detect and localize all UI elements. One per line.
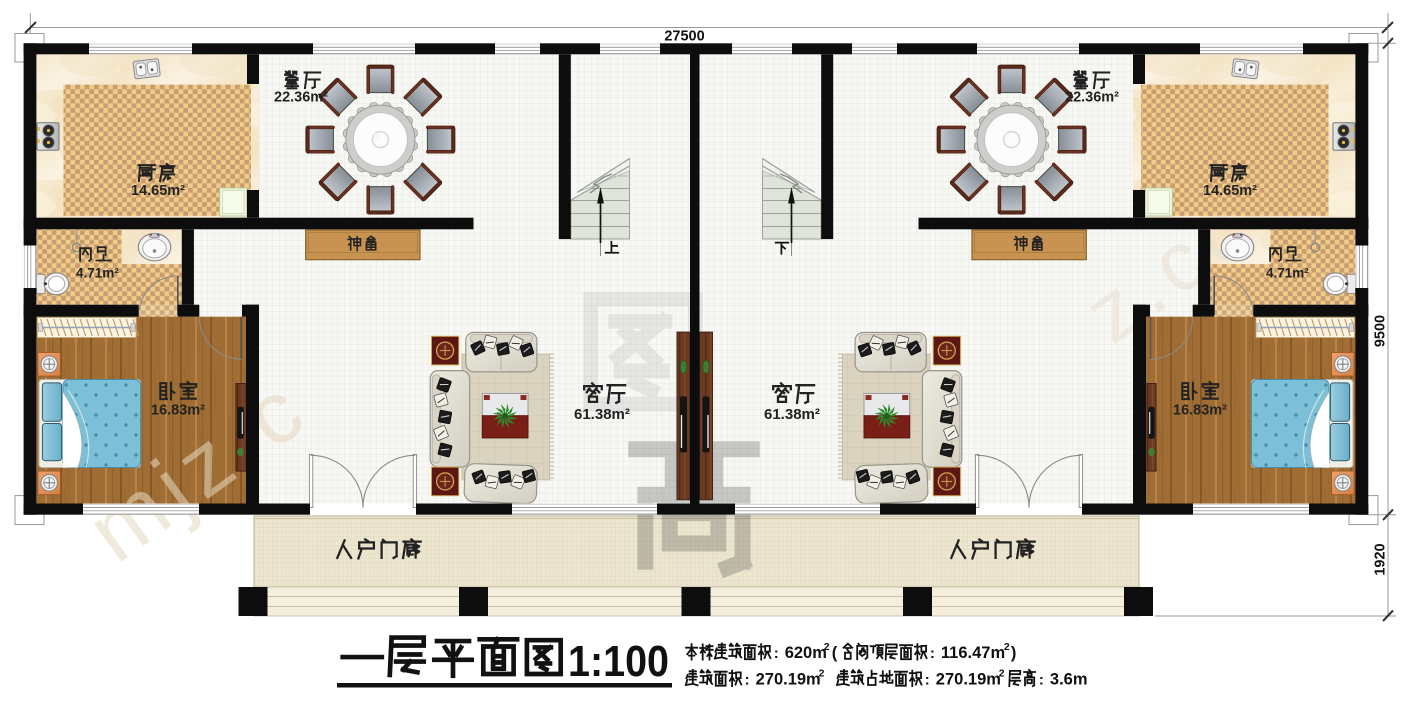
svg-text:14.65m²: 14.65m²	[131, 183, 185, 199]
svg-text:2: 2	[1004, 642, 1010, 653]
svg-text:9500: 9500	[1373, 315, 1389, 347]
svg-text:27500: 27500	[664, 29, 704, 45]
svg-text:1:100: 1:100	[568, 637, 669, 686]
svg-text:22.36m²: 22.36m²	[274, 90, 328, 106]
svg-text:620m: 620m	[785, 644, 827, 662]
svg-text:14.65m²: 14.65m²	[1203, 183, 1257, 199]
svg-text:22.36m²: 22.36m²	[1065, 90, 1119, 106]
svg-text:4.71m²: 4.71m²	[76, 266, 119, 281]
svg-text:270.19m: 270.19m	[936, 671, 1001, 689]
svg-text:2: 2	[819, 669, 825, 680]
svg-text:(: (	[832, 644, 838, 662]
svg-text:): )	[1011, 644, 1017, 662]
svg-text::: :	[774, 645, 779, 662]
svg-text::: :	[1039, 672, 1044, 689]
svg-text:116.47m: 116.47m	[941, 644, 1005, 662]
svg-text:16.83m²: 16.83m²	[1173, 403, 1227, 419]
svg-text:1920: 1920	[1373, 543, 1389, 575]
svg-text:4.71m²: 4.71m²	[1266, 266, 1309, 281]
svg-text:270.19m: 270.19m	[756, 671, 821, 689]
svg-text:3.6m: 3.6m	[1050, 671, 1088, 689]
svg-text::: :	[930, 645, 935, 662]
svg-text::: :	[745, 672, 750, 689]
svg-text:2: 2	[999, 669, 1005, 680]
svg-text:61.38m²: 61.38m²	[574, 406, 630, 423]
svg-text:2: 2	[824, 642, 830, 653]
svg-text:61.38m²: 61.38m²	[764, 406, 820, 423]
svg-text::: :	[925, 672, 930, 689]
svg-text:16.83m²: 16.83m²	[151, 403, 205, 419]
